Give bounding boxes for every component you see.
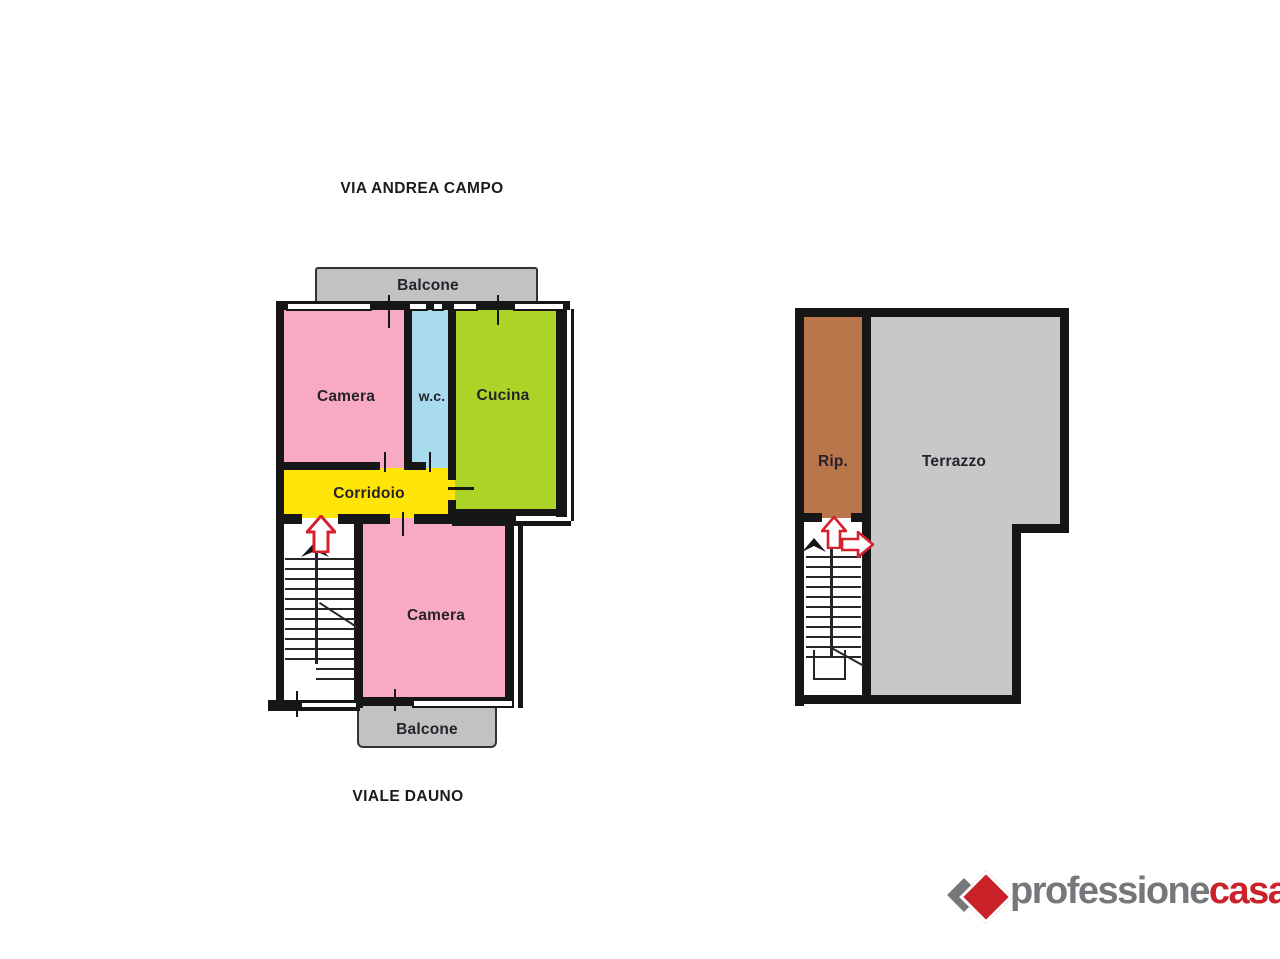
stair-handrail xyxy=(813,650,846,680)
kitchen-room xyxy=(452,305,564,515)
hallway-label: Corridoio xyxy=(333,485,405,503)
wall-segment xyxy=(851,513,871,522)
window-tick xyxy=(388,295,390,328)
wall-segment xyxy=(1012,524,1021,704)
stair-center-line xyxy=(315,552,318,664)
bedroom-top-room xyxy=(283,305,408,469)
brand-name-accent: casa xyxy=(1209,870,1280,912)
window-bar xyxy=(286,302,372,311)
terrace-area-upper xyxy=(870,316,1062,524)
door-tick xyxy=(296,691,298,717)
terrace-area-lower xyxy=(870,524,1014,696)
wall-segment xyxy=(795,308,1069,317)
storage-room xyxy=(803,316,865,518)
door-tick xyxy=(429,452,431,472)
floorplan-canvas: VIA ANDREA CAMPO VIALE DAUNO Balcone Bal… xyxy=(0,0,1280,959)
wall-segment xyxy=(404,462,426,470)
window-bar xyxy=(408,302,428,311)
wall-segment xyxy=(448,462,456,480)
stair-center-line xyxy=(830,546,833,658)
balcony-top-label: Balcone xyxy=(397,277,459,295)
wall-segment xyxy=(277,462,380,470)
brand-wordmark: professionecasa® xyxy=(1010,872,1280,910)
wall-segment xyxy=(354,514,363,708)
window-bar xyxy=(513,302,565,311)
door-tick xyxy=(402,512,404,536)
stair-landing-line xyxy=(316,668,355,670)
window-bar xyxy=(432,302,444,311)
stair-treads xyxy=(285,558,355,664)
wall-segment xyxy=(795,308,804,706)
outer-wall-line xyxy=(571,309,574,521)
stair-landing-line xyxy=(316,678,355,680)
entry-right-arrow-icon xyxy=(841,531,874,558)
window-tick xyxy=(497,295,499,325)
wall-segment xyxy=(338,514,390,524)
wall-segment xyxy=(862,308,871,704)
wall-segment xyxy=(276,301,284,711)
door-tick xyxy=(384,452,386,472)
window-bar xyxy=(452,302,478,311)
wall-segment xyxy=(448,305,456,465)
wall-segment xyxy=(795,513,822,522)
kitchen-label: Cucina xyxy=(477,387,530,405)
wall-segment xyxy=(505,514,514,708)
brand-diamond-red-icon xyxy=(959,870,1013,924)
window-bar xyxy=(412,699,514,708)
bedroom-bottom-label: Camera xyxy=(407,607,465,625)
brand-name-primary: professione xyxy=(1010,870,1209,912)
wall-segment xyxy=(795,695,1021,704)
entry-step-bar xyxy=(300,701,358,709)
terrace-label: Terrazzo xyxy=(922,453,986,471)
wall-segment xyxy=(277,514,302,524)
street-label-bottom: VIALE DAUNO xyxy=(352,788,463,806)
outer-wall-line xyxy=(452,521,571,526)
door-leaf-dash xyxy=(448,487,474,490)
wall-segment xyxy=(404,305,412,465)
wall-segment xyxy=(556,301,567,517)
entry-up-arrow-icon xyxy=(306,515,336,553)
street-label-top: VIA ANDREA CAMPO xyxy=(340,180,503,198)
window-tick xyxy=(394,689,396,711)
balcony-bottom-label: Balcone xyxy=(396,721,458,739)
bedroom-top-label: Camera xyxy=(317,388,375,406)
outer-wall-line xyxy=(518,521,523,708)
wc-label: w.c. xyxy=(419,388,446,404)
wall-segment xyxy=(1060,308,1069,532)
storage-label: Rip. xyxy=(818,453,848,471)
